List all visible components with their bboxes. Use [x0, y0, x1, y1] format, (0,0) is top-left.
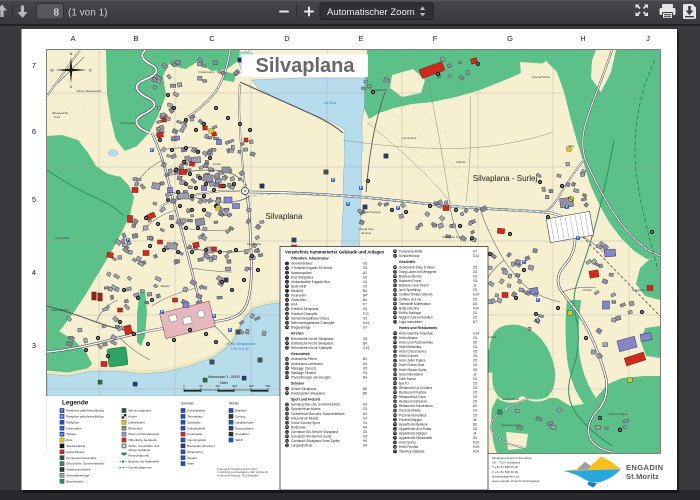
svg-text:Surfzentrum Bos-cha, Sommerbet: Surfzentrum Bos-cha, Sommerbetrieb [291, 412, 345, 416]
svg-text:Tankstelle Murteratsch: Tankstelle Murteratsch [399, 302, 431, 306]
svg-text:Winter: Winter [229, 402, 240, 406]
svg-text:silvaplana@estm.ch: silvaplana@estm.ch [492, 474, 519, 478]
svg-text:www.engadin.stmoritz.ch/silvap: www.engadin.stmoritz.ch/silvaplana [492, 479, 540, 483]
svg-text:Volleyballfeld: Volleyballfeld [187, 426, 205, 430]
svg-text:Bäckerei Grond: Bäckerei Grond [399, 279, 421, 283]
svg-text:C4: C4 [363, 444, 367, 448]
svg-text:Palüd Pangrai: Palüd Pangrai [362, 210, 381, 214]
svg-text:Silvaplana: Silvaplana [256, 55, 356, 77]
svg-text:Langlaufschule: Langlaufschule [291, 444, 313, 448]
svg-text:Kirchen: Kirchen [291, 332, 304, 336]
svg-text:Lej Suot: Lej Suot [324, 101, 337, 105]
svg-text:C5: C5 [473, 400, 477, 404]
svg-text:übrige Gebäude: übrige Gebäude [128, 448, 150, 452]
svg-text:Las Peizok: Las Peizok [402, 136, 417, 140]
svg-text:Restaurant Brasera: Restaurant Brasera [399, 400, 427, 404]
svg-text:Mazt San Gen: Mazt San Gen [442, 235, 462, 239]
svg-text:C5: C5 [473, 297, 477, 301]
svg-text:C6: C6 [473, 436, 477, 440]
svg-text:Sportzentrum Mulets: Sportzentrum Mulets [291, 407, 321, 411]
svg-text:Hotel und Pizzeria Arlas: Hotel und Pizzeria Arlas [399, 341, 433, 345]
svg-text:C5: C5 [363, 371, 367, 375]
svg-text:Niggi & Zala Immobilien: Niggi & Zala Immobilien [399, 316, 433, 320]
svg-text:C5: C5 [363, 337, 367, 341]
svg-text:C5: C5 [363, 307, 367, 311]
svg-text:C6: C6 [473, 270, 477, 274]
svg-text:Restaurant La Chüdera: Restaurant La Chüdera [399, 386, 432, 390]
svg-text:150: 150 [232, 384, 237, 388]
svg-text:B5: B5 [363, 391, 367, 395]
svg-text:Hotel Primula: Hotel Primula [399, 445, 418, 449]
svg-text:C6: C6 [363, 280, 367, 284]
svg-text:Restaurant Surfzentrum: Restaurant Surfzentrum [399, 404, 433, 408]
svg-text:Luftseilbahn: Luftseilbahn [128, 420, 145, 424]
svg-text:C5: C5 [473, 316, 477, 320]
svg-text:C5: C5 [473, 354, 477, 358]
svg-text:B4: B4 [363, 375, 367, 379]
svg-text:1791 m ü. M.: 1791 m ü. M. [231, 347, 250, 351]
svg-text:Ruffi's Boutique: Ruffi's Boutique [399, 311, 421, 315]
svg-text:Öffentlich. Infrastruktur: Öffentlich. Infrastruktur [291, 256, 330, 261]
svg-text:Val da Föglias: Val da Föglias [609, 412, 628, 416]
svg-text:G14: G14 [473, 331, 479, 335]
svg-text:Restaurant Rustica: Restaurant Rustica [399, 391, 426, 395]
svg-text:Orta: Orta [568, 144, 574, 148]
svg-text:Hochmoorgebiet: Hochmoorgebiet [128, 409, 151, 413]
svg-text:Sport und Freizeit: Sport und Freizeit [291, 398, 321, 402]
svg-text:Information: Information [66, 426, 82, 430]
svg-text:H7: H7 [473, 250, 477, 254]
svg-text:(1 von 1): (1 von 1) [68, 8, 107, 19]
svg-text:G7: G7 [363, 325, 367, 329]
svg-text:200: 200 [249, 384, 254, 388]
svg-text:Reformierte Kirche Champfèr: Reformierte Kirche Champfèr [291, 346, 333, 350]
svg-text:J4: J4 [473, 432, 477, 436]
svg-text:Cristansains: Cristansains [198, 70, 215, 74]
svg-text:C5: C5 [473, 275, 477, 279]
svg-text:AXA: AXA [291, 303, 298, 307]
svg-text:A3: A3 [363, 271, 367, 275]
svg-text:C5: C5 [473, 288, 477, 292]
svg-text:Parkplatz gebührenpflichtig: Parkplatz gebührenpflichtig [66, 415, 104, 419]
svg-text:Spuanda Seba: Spuanda Seba [501, 423, 521, 427]
svg-text:Lej da Silvaplauna: Lej da Silvaplauna [225, 342, 254, 346]
svg-text:Sommer: Sommer [181, 402, 195, 406]
svg-text:Kompostiermessstelle: Kompostiermessstelle [66, 456, 97, 460]
svg-text:Buslinie mit Haltestelle: Buslinie mit Haltestelle [128, 460, 159, 464]
svg-text:Loga Immobilien: Loga Immobilien [399, 320, 423, 324]
svg-text:Munterölia: Munterölia [247, 242, 261, 246]
svg-text:Eisstockbahn: Eisstockbahn [235, 426, 254, 430]
svg-text:CH - 7513 Silvaplana: CH - 7513 Silvaplana [492, 461, 521, 465]
svg-text:Mulets: Mulets [161, 284, 170, 288]
svg-text:Feuerstelle: Feuerstelle [187, 432, 203, 436]
svg-text:Cross Country Sport: Cross Country Sport [291, 421, 320, 425]
svg-text:Glassammelstelle: Glassammelstelle [66, 468, 91, 472]
svg-text:Reitschule: Reitschule [128, 426, 143, 430]
svg-text:Langlaufloipe: Langlaufloipe [235, 420, 254, 424]
svg-text:Friedhof Silvaplana: Friedhof Silvaplana [291, 307, 319, 311]
svg-text:Crasta: Crasta [488, 335, 497, 339]
svg-text:B: B [133, 34, 138, 43]
svg-text:Post: Post [66, 438, 72, 442]
svg-text:Massstab 1: 5000: Massstab 1: 5000 [208, 374, 240, 379]
svg-text:Snowkiten: Snowkiten [235, 432, 250, 436]
svg-text:B4: B4 [363, 294, 367, 298]
svg-text:H14: H14 [473, 450, 479, 454]
svg-text:Mehrzweckgebäude Champfèr: Mehrzweckgebäude Champfèr [291, 321, 335, 325]
svg-text:Alpagösta: Alpagösta [631, 288, 645, 292]
svg-text:D: D [284, 34, 290, 43]
svg-text:Apparthotel Margun: Apparthotel Margun [399, 432, 427, 436]
svg-text:5: 5 [32, 195, 36, 204]
svg-text:Apparthotel Müntanella: Apparthotel Müntanella [399, 436, 432, 440]
svg-text:6: 6 [32, 127, 36, 136]
svg-text:Windsurfen: Windsurfen [187, 450, 203, 454]
svg-text:Curtin: Curtin [213, 162, 221, 166]
svg-text:F13: F13 [363, 312, 369, 316]
svg-text:F +41 81 838 60 09: F +41 81 838 60 09 [492, 470, 518, 474]
svg-text:P: P [61, 414, 63, 418]
svg-text:Gemeindesaalbaus Omura: Gemeindesaalbaus Omura [291, 316, 329, 320]
svg-text:Drückstölle, Sommerbetrieb: Drückstölle, Sommerbetrieb [66, 462, 104, 466]
svg-text:Reformierte Kirche Silvaplana: Reformierte Kirche Silvaplana [291, 337, 333, 341]
svg-text:T +41 81 838 60 00: T +41 81 838 60 00 [492, 465, 518, 469]
svg-text:Hotel Conrad: Hotel Conrad [399, 354, 418, 358]
svg-text:C6: C6 [363, 262, 367, 266]
svg-text:Schreinerei Elias & Meier: Schreinerei Elias & Meier [399, 265, 436, 269]
svg-text:Bufla pitschna: Bufla pitschna [399, 306, 419, 310]
svg-text:H14: H14 [363, 321, 369, 325]
svg-text:Bäckerei Buntur: Bäckerei Buntur [399, 275, 423, 279]
svg-text:Hotel und Restaurants: Hotel und Restaurants [128, 432, 159, 436]
svg-text:Pizzeria Margun: Pizzeria Margun [399, 418, 422, 422]
svg-text:Massage Zanuzzi: Massage Zanuzzi [291, 366, 316, 370]
svg-text:Toilette: Toilette [66, 432, 76, 436]
svg-text:Tennisplatz: Tennisplatz [187, 415, 203, 419]
svg-text:Apparthotel ai la Posta: Apparthotel ai la Posta [399, 427, 431, 431]
svg-text:Andrometa Peters: Andrometa Peters [291, 357, 317, 361]
svg-text:Palüs Omura: Palüs Omura [51, 308, 69, 312]
svg-text:Kirche: Kirche [128, 415, 137, 419]
svg-text:Massage Sendlof: Massage Sendlof [291, 371, 316, 375]
svg-text:C5: C5 [363, 266, 367, 270]
svg-text:4: 4 [32, 268, 36, 277]
svg-text:Bar PJ: Bar PJ [399, 381, 409, 385]
svg-text:Kehrichthaus: Kehrichthaus [66, 450, 85, 454]
svg-text:Altmetallverenge: Altmetallverenge [66, 474, 89, 478]
svg-text:C5: C5 [363, 316, 367, 320]
svg-text:C5: C5 [473, 377, 477, 381]
svg-text:H14: H14 [473, 306, 479, 310]
svg-text:Corvatsch Silvaplana Snow Spor: Corvatsch Silvaplana Snow Sports [291, 439, 340, 443]
svg-text:Apparthotel Bellaval: Apparthotel Bellaval [399, 422, 428, 426]
svg-text:C4: C4 [363, 407, 367, 411]
svg-text:C5: C5 [363, 430, 367, 434]
svg-text:J: J [646, 34, 650, 43]
svg-text:Verzeichnis nummerierter Gebäu: Verzeichnis nummerierter Gebäude und Anl… [285, 250, 385, 255]
svg-text:F: F [433, 34, 438, 43]
svg-text:G: G [507, 34, 513, 43]
svg-text:Kantonspolizei: Kantonspolizei [291, 271, 312, 275]
svg-text:B4: B4 [363, 298, 367, 302]
svg-text:Quarta Morta: Quarta Morta [532, 75, 550, 79]
svg-text:N: N [70, 52, 73, 56]
svg-text:Eisplatz: Eisplatz [235, 409, 246, 413]
svg-text:H15: H15 [473, 445, 479, 449]
svg-text:Hotel Surlej: Hotel Surlej [399, 441, 416, 445]
svg-text:C5: C5 [473, 386, 477, 390]
svg-text:Talavricy Dallasse: Talavricy Dallasse [399, 450, 425, 454]
svg-text:A3: A3 [363, 403, 367, 407]
svg-text:Pizzeria Romantica: Pizzeria Romantica [399, 413, 427, 417]
svg-text:Feuerwehr: Feuerwehr [291, 294, 307, 298]
svg-text:Gemeindehaus: Gemeindehaus [291, 262, 313, 266]
svg-text:C5: C5 [473, 413, 477, 417]
svg-text:Camping Bos-cha, Sommerbetrieb: Camping Bos-cha, Sommerbetrieb [291, 403, 340, 407]
svg-text:G14: G14 [473, 254, 479, 258]
svg-text:250: 250 [266, 384, 271, 388]
svg-text:Bootsplatz (Fischer): Bootsplatz (Fischer) [187, 444, 215, 448]
svg-text:Kindergarten Silvaplana: Kindergarten Silvaplana [291, 391, 325, 395]
svg-text:C4: C4 [363, 421, 367, 425]
svg-text:8: 8 [53, 8, 59, 19]
svg-text:Friedhof Champfèr: Friedhof Champfèr [291, 312, 319, 316]
svg-text:Post Silvaplana: Post Silvaplana [291, 275, 313, 279]
svg-text:C5: C5 [473, 391, 477, 395]
svg-text:Panorama-Hütte: Panorama-Hütte [399, 250, 423, 254]
svg-text:3: 3 [32, 341, 36, 350]
svg-text:I+Hostelle Engadin St. Moritz: I+Hostelle Engadin St. Moritz [291, 266, 333, 270]
svg-text:Katholische Kirche Silvaplana: Katholische Kirche Silvaplana [291, 341, 333, 345]
svg-text:O: O [89, 69, 92, 73]
svg-text:Schützenhaus: Schützenhaus [399, 254, 420, 258]
svg-text:Kiten: Kiten [187, 462, 194, 466]
svg-text:Pizzeria Mulets: Pizzeria Mulets [399, 409, 421, 413]
svg-text:C5: C5 [473, 381, 477, 385]
svg-text:Segeln: Segeln [187, 456, 197, 460]
svg-text:Curling: Curling [235, 415, 245, 419]
svg-text:A3: A3 [473, 404, 477, 408]
svg-text:C5: C5 [473, 345, 477, 349]
svg-text:Verkaufsstelle Engadin Bus: Verkaufsstelle Engadin Bus [291, 280, 330, 284]
svg-text:da Seis: da Seis [361, 231, 372, 235]
svg-text:Hotel Chesa Silva: Hotel Chesa Silva [399, 363, 425, 367]
svg-text:Corvatsch Ski-Service Surlej: Corvatsch Ski-Service Surlej [291, 435, 332, 439]
svg-text:H4: H4 [363, 439, 367, 443]
svg-text:Iso's Sportshop: Iso's Sportshop [399, 288, 421, 292]
svg-text:Chistla: Chistla [582, 288, 592, 292]
svg-text:C5: C5 [473, 311, 477, 315]
svg-text:G14: G14 [363, 346, 369, 350]
svg-text:F7: F7 [363, 303, 367, 307]
svg-text:Corvatsch Ski-Service Silvapla: Corvatsch Ski-Service Silvaplana [291, 430, 338, 434]
svg-text:C5: C5 [473, 363, 477, 367]
svg-text:Gesundheit: Gesundheit [291, 352, 311, 356]
svg-text:Öffentliche Gebäude: Öffentliche Gebäude [128, 438, 157, 442]
svg-text:ENGADIN: ENGADIN [626, 463, 663, 472]
svg-text:Vlorg-Laden mit Metzgerei: Vlorg-Laden mit Metzgerei [399, 270, 437, 274]
svg-text:G5: G5 [473, 350, 477, 354]
svg-text:G5: G5 [363, 366, 367, 370]
svg-text:Werkhof: Werkhof [291, 289, 303, 293]
svg-text:C: C [209, 34, 215, 43]
svg-text:C6: C6 [473, 427, 477, 431]
svg-text:D5: D5 [473, 341, 477, 345]
svg-text:Arsa Nuda: Arsa Nuda [120, 121, 135, 125]
svg-text:Spielplatz: Spielplatz [187, 420, 201, 424]
svg-text:G5: G5 [363, 435, 367, 439]
svg-text:H15: H15 [473, 441, 479, 445]
svg-text:C4: C4 [363, 362, 367, 366]
svg-text:Silvaplana Tourist Information: Silvaplana Tourist Information [492, 456, 532, 460]
svg-text:Restaurant A Cava: Restaurant A Cava [399, 395, 426, 399]
svg-text:Café Buntur: Café Buntur [399, 377, 417, 381]
svg-text:Schule Silvaplana: Schule Silvaplana [291, 387, 317, 391]
svg-text:Parkhaus gebührenpflichtig: Parkhaus gebührenpflichtig [66, 409, 104, 413]
svg-text:Bäckerei zeun fresch: Bäckerei zeun fresch [399, 284, 429, 288]
svg-text:J3: J3 [473, 284, 477, 288]
svg-text:Silvaplana: Silvaplana [266, 212, 303, 221]
svg-text:A3: A3 [473, 302, 477, 306]
svg-text:Silvaplana - Surlej: Silvaplana - Surlej [473, 174, 538, 183]
svg-text:Parkplatz: Parkplatz [66, 420, 79, 424]
svg-text:Hotel Gianimo Mountain: Hotel Gianimo Mountain [399, 331, 433, 335]
svg-text:Coiffeur Cut me: Coiffeur Cut me [399, 297, 421, 301]
svg-text:C6: C6 [363, 275, 367, 279]
svg-text:G5: G5 [473, 368, 477, 372]
svg-text:Fussballplatz: Fussballplatz [187, 409, 206, 413]
svg-text:C5: C5 [473, 359, 477, 363]
svg-text:Reitschule: Reitschule [291, 425, 306, 429]
svg-text:Floun Albaneischs: Floun Albaneischs [77, 89, 102, 93]
svg-text:C5: C5 [473, 336, 477, 340]
svg-text:Hotel Süsom Surlej: Hotel Süsom Surlej [399, 368, 427, 372]
svg-text:Skilift: Skilift [235, 438, 243, 442]
svg-text:B4: B4 [363, 289, 367, 293]
svg-text:B5: B5 [363, 387, 367, 391]
svg-text:Suot: Suot [54, 115, 60, 119]
svg-text:Schulen: Schulen [291, 382, 304, 386]
svg-text:J3: J3 [473, 372, 477, 376]
svg-text:C4: C4 [363, 416, 367, 420]
svg-text:B6: B6 [473, 422, 477, 426]
svg-text:C5: C5 [473, 395, 477, 399]
svg-text:Amtliche Vermessung, 7513 Silv: Amtliche Vermessung, 7513 Silvaplana [217, 474, 259, 477]
svg-text:B4: B4 [363, 341, 367, 345]
svg-text:Physiotherapie van Heugten: Physiotherapie van Heugten [291, 375, 331, 379]
svg-text:Legende: Legende [62, 400, 89, 407]
svg-text:Hotel Albana: Hotel Albana [399, 336, 417, 340]
svg-text:P: P [61, 409, 63, 413]
svg-text:Hotel Nira Alpina: Hotel Nira Alpina [399, 372, 423, 376]
svg-text:D7: D7 [473, 320, 477, 324]
svg-text:E: E [358, 34, 363, 43]
svg-text:B4: B4 [363, 357, 367, 361]
svg-text:Hotel Chesa Surlej: Hotel Chesa Surlej [399, 350, 426, 354]
svg-text:7: 7 [32, 61, 36, 70]
svg-text:Biomüllstelle: Biomüllstelle [66, 479, 84, 483]
svg-text:Münter: Münter [456, 160, 465, 164]
svg-text:C5: C5 [473, 265, 477, 269]
svg-text:Telefonkabine: Telefonkabine [66, 444, 85, 448]
svg-text:Coiffeur Simlan (Voluni): Coiffeur Simlan (Voluni) [399, 293, 432, 297]
svg-text:Biogasanlage: Biogasanlage [291, 325, 311, 329]
svg-text:Campingplatz: Campingplatz [187, 438, 206, 442]
svg-text:50: 50 [199, 384, 203, 388]
svg-text:Hotels und Restaurants: Hotels und Restaurants [399, 326, 437, 330]
svg-text:Androrama Lanfranchi: Androrama Lanfranchi [291, 362, 323, 366]
svg-text:Gemeindegrenze: Gemeindegrenze [128, 466, 152, 470]
svg-text:Hotel Bellavista: Hotel Bellavista [399, 345, 421, 349]
svg-text:100: 100 [215, 384, 220, 388]
svg-text:C5: C5 [473, 279, 477, 283]
svg-text:Guat Pütta: Guat Pütta [55, 236, 70, 240]
svg-text:H: H [580, 34, 585, 43]
svg-text:H4: H4 [363, 425, 367, 429]
svg-text:St.Moritz: St.Moritz [626, 472, 659, 481]
svg-text:Hotel Julier Palace: Hotel Julier Palace [399, 359, 426, 363]
svg-text:J4: J4 [473, 418, 477, 422]
svg-text:Automatischer Zoom: Automatischer Zoom [327, 7, 415, 18]
svg-text:Kitezentrum Mulets: Kitezentrum Mulets [291, 416, 319, 420]
svg-text:C5: C5 [363, 285, 367, 289]
svg-text:Cristabocha: Cristabocha [371, 88, 387, 92]
svg-text:Aussichtspunkt: Aussichtspunkt [128, 454, 149, 458]
svg-text:Geschäfte: Geschäfte [399, 260, 416, 264]
svg-text:C4: C4 [473, 409, 477, 413]
svg-text:Dimlej Seba: Dimlej Seba [503, 397, 520, 401]
svg-text:Zivilschutz: Zivilschutz [291, 298, 306, 302]
svg-text:A3: A3 [363, 412, 367, 416]
svg-text:W: W [50, 69, 54, 73]
svg-text:G14: G14 [473, 293, 479, 297]
svg-text:Bank GKB: Bank GKB [291, 285, 306, 289]
svg-text:Meter: Meter [220, 381, 229, 385]
svg-text:A: A [70, 34, 75, 43]
